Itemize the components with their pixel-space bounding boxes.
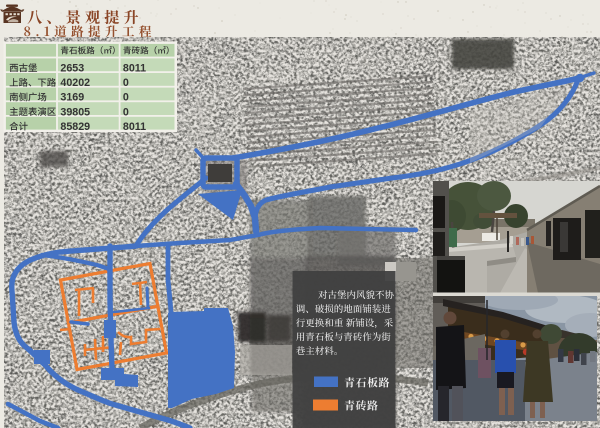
svg-text:8011: 8011 <box>123 121 146 133</box>
svg-text:2653: 2653 <box>60 63 84 75</box>
svg-text:0: 0 <box>123 92 129 104</box>
svg-text:39805: 39805 <box>60 106 90 118</box>
svg-text:0: 0 <box>123 77 129 89</box>
svg-text:3169: 3169 <box>60 92 84 104</box>
svg-text:0: 0 <box>123 106 129 118</box>
svg-text:8011: 8011 <box>123 63 146 75</box>
svg-text:85829: 85829 <box>60 121 90 133</box>
svg-text:40202: 40202 <box>60 77 90 89</box>
